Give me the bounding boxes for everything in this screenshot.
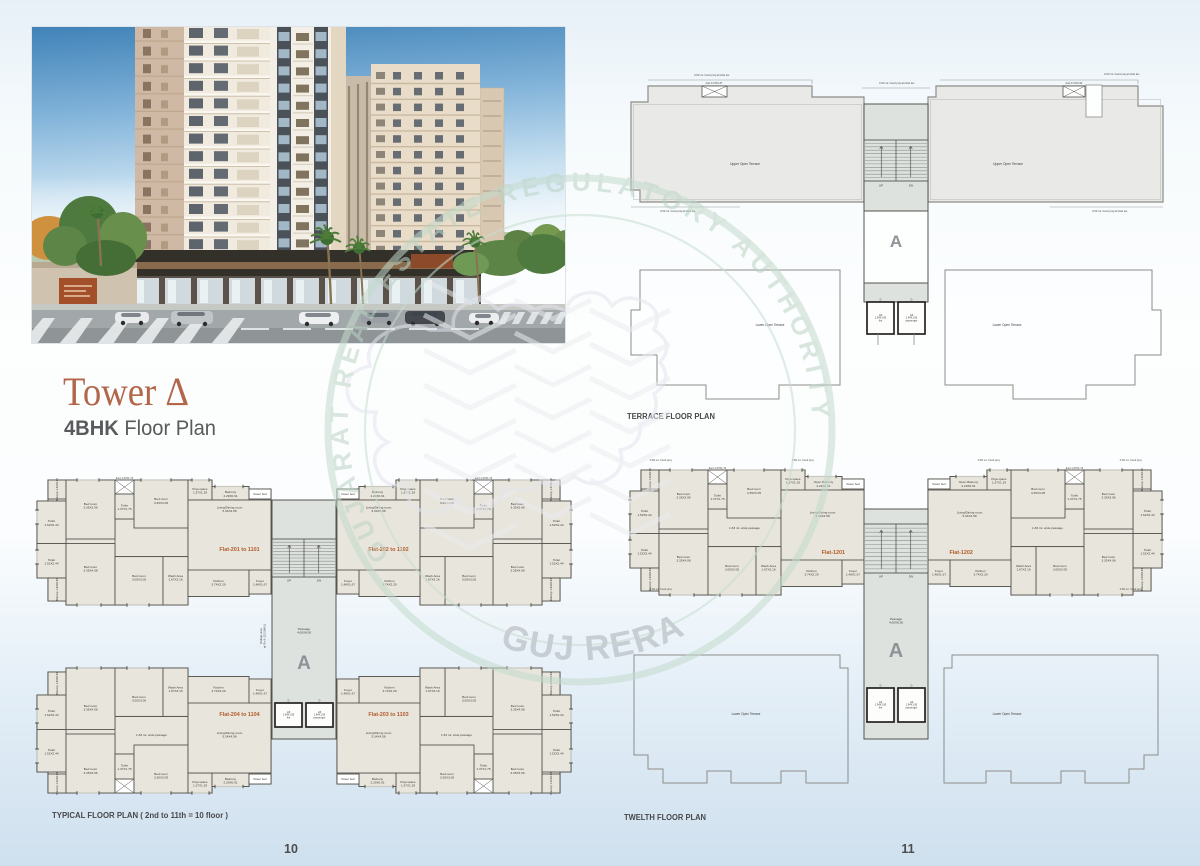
svg-text:UP: UP <box>879 575 883 579</box>
svg-text:Balcony2.29X0.91: Balcony2.29X0.91 <box>223 777 237 785</box>
svg-text:0.60 mt. hood proj.: 0.60 mt. hood proj. <box>650 587 673 591</box>
svg-text:UP: UP <box>879 184 883 188</box>
svg-text:Bed room3.05X3.05: Bed room3.05X3.05 <box>462 574 476 582</box>
svg-text:Bed room3.35X3.96: Bed room3.35X3.96 <box>83 502 97 510</box>
svg-text:flower bed: flower bed <box>846 482 860 486</box>
svg-text:Passage4.00X8.30: Passage4.00X8.30 <box>889 617 903 625</box>
svg-text:duct 0.72X1.52: duct 0.72X1.52 <box>1066 82 1083 85</box>
svg-text:Flat-1201: Flat-1201 <box>822 550 845 556</box>
svg-text:A: A <box>890 232 902 251</box>
svg-text:Wash Area1.67X3.16: Wash Area1.67X3.16 <box>761 564 776 572</box>
svg-text:0.60 mt. hood proj.: 0.60 mt. hood proj. <box>792 458 815 462</box>
svg-text:Balcony 1.64X0.84: Balcony 1.64X0.84 <box>549 578 553 601</box>
svg-text:0.60 mt. hood proj.at lintel l: 0.60 mt. hood proj.at lintel lev. <box>1104 72 1140 76</box>
svg-text:1.83 mt. wide passage: 1.83 mt. wide passage <box>1032 526 1063 530</box>
svg-text:Flat-204 to 1104: Flat-204 to 1104 <box>219 712 259 718</box>
svg-text:Bed room3.35X4.08: Bed room3.35X4.08 <box>676 555 690 563</box>
svg-text:Passage4.00X8.00: Passage4.00X8.00 <box>297 627 311 635</box>
svg-text:Bed room3.35X4.08: Bed room3.35X4.08 <box>510 565 524 573</box>
svg-text:0.60 mt. hood proj.: 0.60 mt. hood proj. <box>978 458 1001 462</box>
svg-text:Wash Area1.67X3.16: Wash Area1.67X3.16 <box>168 685 183 693</box>
svg-text:Upper Open Terrace: Upper Open Terrace <box>993 162 1023 166</box>
svg-text:0.60 mt. hood proj.: 0.60 mt. hood proj. <box>650 458 673 462</box>
svg-text:1.83 mt. wide passage: 1.83 mt. wide passage <box>136 733 167 737</box>
svg-text:Bed room3.35X3.05: Bed room3.35X3.05 <box>154 497 168 505</box>
svg-text:D: D <box>880 685 882 688</box>
svg-text:Puja space1.37X1.29: Puja space1.37X1.29 <box>400 780 416 788</box>
svg-text:Bed room3.35X3.05: Bed room3.35X3.05 <box>154 772 168 780</box>
svg-text:Wash Area1.67X3.16: Wash Area1.67X3.16 <box>1016 564 1031 572</box>
svg-text:0.60 mt. hood proj.at lintel l: 0.60 mt. hood proj.at lintel lev. <box>1092 209 1128 213</box>
svg-text:Bed room3.35X3.96: Bed room3.35X3.96 <box>83 767 97 775</box>
svg-text:flower bed: flower bed <box>932 482 946 486</box>
svg-text:duct 0.72X1.37: duct 0.72X1.37 <box>706 82 723 85</box>
svg-text:Bed room3.35X3.05: Bed room3.35X3.05 <box>440 772 454 780</box>
svg-text:DN: DN <box>317 579 321 583</box>
svg-text:DN: DN <box>909 184 913 188</box>
svg-text:Refuge areaat 7th fl. (22.56M.: Refuge areaat 7th fl. (22.56M.L) <box>259 624 266 648</box>
svg-text:1.83 mt. wide passage: 1.83 mt. wide passage <box>729 526 760 530</box>
svg-text:Bed room3.35X3.96: Bed room3.35X3.96 <box>1101 492 1115 500</box>
svg-text:Puja space1.37X1.29: Puja space1.37X1.29 <box>192 780 208 788</box>
svg-text:flower bed: flower bed <box>341 777 355 781</box>
svg-text:Upper Open Terrace: Upper Open Terrace <box>730 162 760 166</box>
svg-text:Balcony 1.52X0.84: Balcony 1.52X0.84 <box>1140 468 1144 491</box>
svg-text:1.83 mt. wide passage: 1.83 mt. wide passage <box>441 733 472 737</box>
svg-text:Bed room3.35X4.08: Bed room3.35X4.08 <box>510 704 524 712</box>
svg-text:UP: UP <box>287 579 291 583</box>
svg-text:Balcony2.29X0.91: Balcony2.29X0.91 <box>223 490 237 498</box>
svg-text:GUJ RERA: GUJ RERA <box>497 606 690 669</box>
svg-text:Tower Δ: Tower Δ <box>63 369 189 414</box>
svg-text:flower bed: flower bed <box>253 777 267 781</box>
svg-text:Puja space1.37X1.29: Puja space1.37X1.29 <box>192 487 208 495</box>
svg-text:Bed room3.05X3.05: Bed room3.05X3.05 <box>725 564 739 572</box>
svg-text:D: D <box>288 700 290 703</box>
svg-text:11: 11 <box>901 842 914 856</box>
svg-text:Lower Open Terrace: Lower Open Terrace <box>993 323 1022 327</box>
svg-text:Flat-1202: Flat-1202 <box>950 550 973 556</box>
svg-text:Balcony2.29X0.91: Balcony2.29X0.91 <box>370 490 384 498</box>
svg-text:Bed room3.35X3.96: Bed room3.35X3.96 <box>510 767 524 775</box>
svg-text:Balcony 1.52X0.84: Balcony 1.52X0.84 <box>55 478 59 501</box>
svg-text:Bed room3.35X4.08: Bed room3.35X4.08 <box>1101 555 1115 563</box>
svg-text:Balcony 1.64X0.84: Balcony 1.64X0.84 <box>55 578 59 601</box>
svg-text:0.60 mt. hood proj.: 0.60 mt. hood proj. <box>1120 458 1143 462</box>
svg-text:4BHK Floor Plan: 4BHK Floor Plan <box>64 416 216 440</box>
svg-text:Flat-203 to 1103: Flat-203 to 1103 <box>368 712 408 718</box>
svg-text:Bed room3.35X3.05: Bed room3.35X3.05 <box>747 487 761 495</box>
svg-text:Balcony 1.52X0.84: Balcony 1.52X0.84 <box>549 772 553 795</box>
svg-text:Bed room3.35X4.08: Bed room3.35X4.08 <box>83 704 97 712</box>
svg-text:10: 10 <box>284 842 298 856</box>
svg-text:0.60 mt. hood proj.at lintel l: 0.60 mt. hood proj.at lintel lev. <box>694 73 730 77</box>
svg-text:Bed room3.35X3.05: Bed room3.35X3.05 <box>1031 487 1045 495</box>
svg-text:Bed room3.05X3.05: Bed room3.05X3.05 <box>462 695 476 703</box>
svg-text:0.60 mt. hood proj.: 0.60 mt. hood proj. <box>1120 587 1143 591</box>
svg-text:DN: DN <box>909 575 913 579</box>
svg-text:D: D <box>880 299 882 302</box>
svg-text:Bed room3.05X3.05: Bed room3.05X3.05 <box>132 574 146 582</box>
svg-text:A: A <box>889 640 903 662</box>
svg-text:Bed room3.35X4.08: Bed room3.35X4.08 <box>83 565 97 573</box>
svg-text:flower bed: flower bed <box>253 492 267 496</box>
svg-text:Balcony2.29X0.91: Balcony2.29X0.91 <box>370 777 384 785</box>
svg-text:TERRACE FLOOR PLAN: TERRACE FLOOR PLAN <box>627 411 715 421</box>
svg-text:D: D <box>911 299 913 302</box>
svg-text:Bed room3.05X3.05: Bed room3.05X3.05 <box>1053 564 1067 572</box>
svg-text:Bed room3.05X3.05: Bed room3.05X3.05 <box>132 695 146 703</box>
svg-text:duct 1.37X1.72: duct 1.37X1.72 <box>1066 466 1084 470</box>
svg-text:Flat-201 to 1101: Flat-201 to 1101 <box>219 547 259 553</box>
svg-text:D: D <box>911 685 913 688</box>
svg-text:Bed room3.35X3.96: Bed room3.35X3.96 <box>676 492 690 500</box>
svg-text:Lower Open Terrace: Lower Open Terrace <box>993 712 1022 716</box>
svg-text:D: D <box>319 700 321 703</box>
svg-text:duct 1.37X1.72: duct 1.37X1.72 <box>116 476 134 480</box>
svg-text:Balcony 1.64X0.84: Balcony 1.64X0.84 <box>55 672 59 695</box>
svg-text:TYPICAL FLOOR PLAN ( 2nd to 11: TYPICAL FLOOR PLAN ( 2nd to 11th = 10 fl… <box>52 810 228 820</box>
svg-text:duct 1.37X1.72: duct 1.37X1.72 <box>709 466 727 470</box>
svg-text:0.60 mt. hood proj.at lintel l: 0.60 mt. hood proj.at lintel lev. <box>879 81 915 85</box>
svg-text:TWELTH FLOOR PLAN: TWELTH FLOOR PLAN <box>624 812 706 822</box>
svg-text:Wash Area1.67X3.16: Wash Area1.67X3.16 <box>425 685 440 693</box>
svg-text:Balcony 1.52X0.84: Balcony 1.52X0.84 <box>55 772 59 795</box>
svg-text:Lower Open Terrace: Lower Open Terrace <box>756 323 785 327</box>
svg-text:A: A <box>297 653 311 674</box>
svg-text:Wash Area1.67X3.16: Wash Area1.67X3.16 <box>168 574 183 582</box>
svg-text:Lower Open Terrace: Lower Open Terrace <box>732 712 761 716</box>
svg-text:Puja space1.37X1.29: Puja space1.37X1.29 <box>991 477 1007 485</box>
